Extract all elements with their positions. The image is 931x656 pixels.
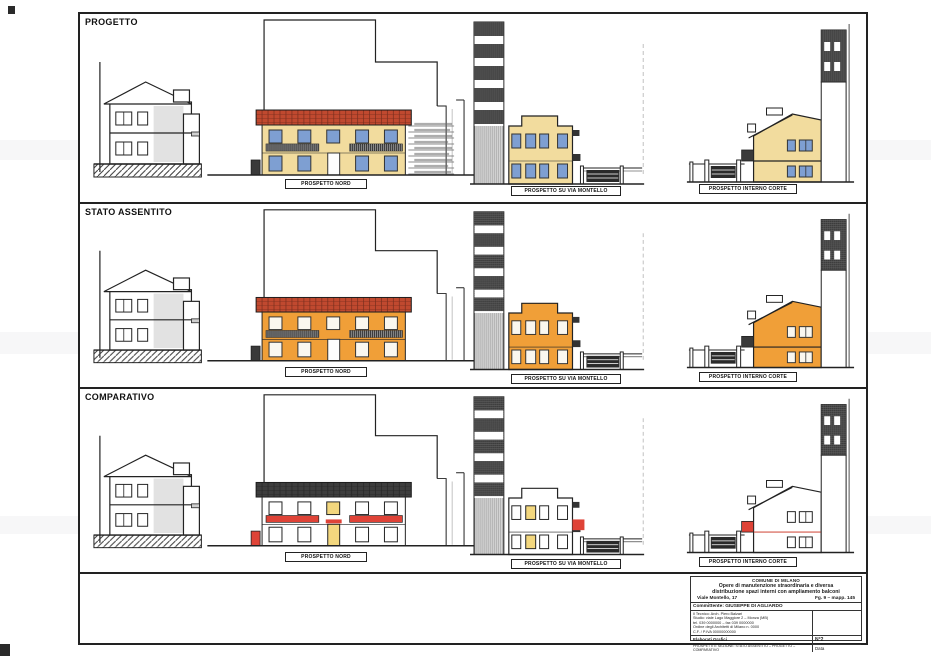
elevation-label-nord: PROSPETTO NORD (285, 552, 367, 562)
courtyard-elevation (687, 214, 854, 368)
scanned-drawing-page: { "sheet": { "rows": [ {"title":"PROGETT… (0, 0, 931, 656)
designer-block: Il Tecnico: Arch. Piero Balzari Studio: … (691, 610, 861, 635)
elevations-assentito (80, 204, 866, 387)
elevations-progetto (80, 14, 866, 202)
designer-line: C.F. / P.IVA 00000000000 (693, 630, 810, 634)
site-address: Viale Montello, 17 (697, 596, 737, 601)
via-montello-elevation (470, 397, 644, 555)
panel-comparativo: COMPARATIVO PROSPETTO NORD PROSPETTO SU … (80, 387, 866, 572)
elevation-label-corte: PROSPETTO INTERNO CORTE (699, 184, 797, 194)
section-drawing (94, 251, 201, 363)
section-drawing (94, 62, 201, 177)
section-drawing (94, 436, 201, 548)
scan-mark-top-left (8, 6, 15, 14)
elevation-label-corte: PROSPETTO INTERNO CORTE (699, 557, 797, 567)
row-title: COMPARATIVO (85, 392, 154, 402)
panel-progetto: PROGETTO PROSPETTO NORD PROSPETTO SU VIA… (80, 14, 866, 202)
drawing-title: Elaborati Grafici (693, 637, 810, 642)
elevation-label-nord: PROSPETTO NORD (285, 179, 367, 189)
courtyard-elevation (687, 24, 854, 182)
cadastre-reference: Fg. 9 – mapp. 145 (815, 596, 855, 601)
sheet-number: N°2 (813, 636, 861, 645)
courtyard-elevation (687, 399, 854, 553)
row-title: STATO ASSENTITO (85, 207, 172, 217)
drawing-sheet: PROGETTO PROSPETTO NORD PROSPETTO SU VIA… (78, 12, 868, 645)
drawing-description: PROSPETTI E SEZIONE: STATO ASSENTITO – P… (693, 644, 810, 652)
stamp-box (813, 611, 861, 635)
elevation-label-montello: PROSPETTO SU VIA MONTELLO (511, 559, 621, 569)
row-title: PROGETTO (85, 17, 138, 27)
date-label: Data (813, 645, 861, 652)
elevation-label-montello: PROSPETTO SU VIA MONTELLO (511, 374, 621, 384)
via-montello-elevation (470, 22, 644, 184)
via-montello-elevation (470, 212, 644, 370)
scan-mark-bottom-left (0, 644, 10, 656)
elevation-label-nord: PROSPETTO NORD (285, 367, 367, 377)
elevation-label-corte: PROSPETTO INTERNO CORTE (699, 372, 797, 382)
client-line: Committente: GIUSEPPE DI AGLIARDO (691, 602, 861, 610)
work-title-line2: distribuzione spazi interni con ampliame… (693, 589, 859, 595)
drawing-info-row: Elaborati Grafici PROSPETTI E SEZIONE: S… (691, 635, 861, 652)
bottom-strip: COMUNE DI MILANO Opere di manutenzione s… (80, 572, 866, 645)
elevations-comparativo (80, 389, 866, 572)
panel-stato-assentito: STATO ASSENTITO PROSPETTO NORD PROSPETTO… (80, 202, 866, 387)
title-block: COMUNE DI MILANO Opere di manutenzione s… (690, 576, 862, 641)
elevation-label-montello: PROSPETTO SU VIA MONTELLO (511, 186, 621, 196)
title-block-header: COMUNE DI MILANO Opere di manutenzione s… (691, 577, 861, 602)
